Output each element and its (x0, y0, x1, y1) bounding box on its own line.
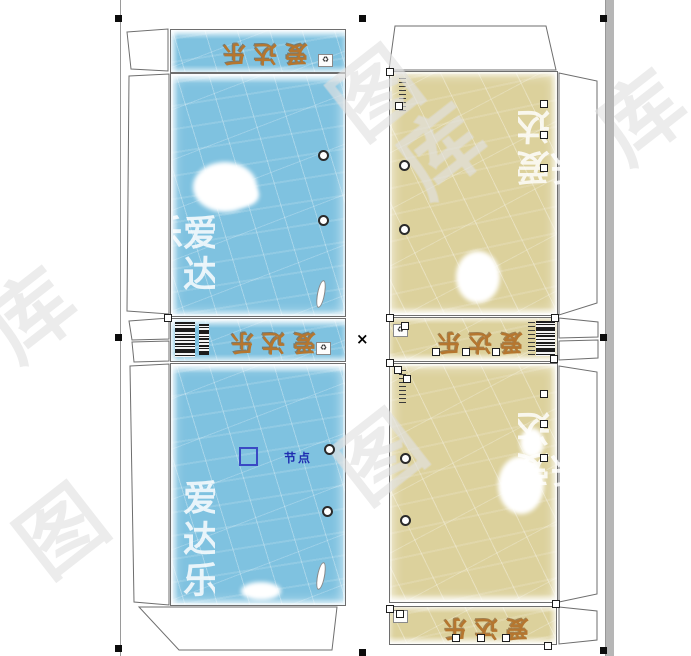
node-circle[interactable] (318, 215, 329, 226)
grunge-splat (231, 184, 259, 206)
node-square[interactable] (462, 348, 470, 356)
barcode[interactable] (175, 322, 195, 357)
node-square[interactable] (395, 102, 403, 110)
tan-bottom-panel[interactable]: 爱达乐 (389, 363, 558, 603)
node-square[interactable] (544, 642, 552, 650)
node-square[interactable] (432, 348, 440, 356)
selection-handle-top-right[interactable] (600, 15, 607, 22)
squiggle-mark (315, 562, 327, 591)
node-square[interactable] (540, 420, 548, 428)
node-circle[interactable] (324, 444, 335, 455)
node-square[interactable] (386, 314, 394, 322)
grunge-splat (456, 251, 500, 303)
die-flap-bottom-left-box[interactable] (139, 607, 337, 650)
squiggle-mark (315, 280, 327, 309)
node-square[interactable] (540, 100, 548, 108)
recycle-icon: ♻ (316, 342, 331, 355)
node-square[interactable] (386, 605, 394, 613)
selection-handle-mid-right[interactable] (600, 334, 607, 341)
selection-handle-bottom-left[interactable] (115, 645, 122, 652)
blue-top-panel[interactable]: 爱达乐 (170, 73, 346, 317)
blue-mid-strip[interactable]: 爱达乐 ♻ (170, 318, 346, 362)
vertical-scrollbar[interactable] (605, 0, 614, 656)
node-square[interactable] (540, 164, 548, 172)
barcode[interactable] (199, 324, 209, 355)
selection-handle-mid-left[interactable] (115, 334, 122, 341)
node-square[interactable] (164, 314, 172, 322)
selection-handle-bottom-center[interactable] (359, 649, 366, 656)
die-flap-side-lower-right[interactable] (559, 366, 597, 602)
node-circle[interactable] (322, 506, 333, 517)
node-square[interactable] (394, 366, 402, 374)
node-square[interactable] (551, 314, 559, 322)
node-circle[interactable] (400, 515, 411, 526)
node-tooltip-label: 节点 (284, 449, 312, 466)
die-flap-strip-right-a[interactable] (559, 318, 598, 338)
blue-bottom-panel[interactable]: 爱达乐 (170, 363, 346, 606)
die-flap-bottom-right-small[interactable] (559, 607, 597, 644)
selected-node-indicator[interactable] (239, 447, 258, 466)
brand-text-blue-strip: 爱达乐 (223, 328, 316, 362)
selection-center-mark: × (356, 330, 369, 348)
die-flap-top-right-box[interactable] (389, 26, 556, 70)
node-square[interactable] (552, 600, 560, 608)
brand-text-tan-bottom-flap: 爱达乐 (436, 614, 529, 648)
node-square[interactable] (550, 355, 558, 363)
die-flap-side-upper-right[interactable] (559, 73, 597, 315)
selection-handle-top-center[interactable] (359, 15, 366, 22)
barcode[interactable] (536, 321, 555, 356)
node-square[interactable] (540, 454, 548, 462)
node-square[interactable] (452, 634, 460, 642)
node-circle[interactable] (399, 224, 410, 235)
die-flap-side-lower-left[interactable] (130, 364, 169, 605)
node-circle[interactable] (399, 160, 410, 171)
grunge-splat (241, 582, 281, 600)
ghost-brand-text-vertical: 爱达乐 (518, 370, 560, 488)
die-flap-strip-right-b[interactable] (559, 340, 598, 360)
brand-text-tan-strip: 爱达乐 (430, 328, 523, 362)
brand-text-blue-top-flap: 爱达乐 (215, 39, 308, 73)
ghost-brand-text-vertical: 爱达乐 (518, 76, 560, 186)
node-circle[interactable] (318, 150, 329, 161)
editor-canvas[interactable]: 爱达乐 ♻ 爱达乐 爱达乐 ♻ 爱达乐 爱达乐 ♻ (0, 0, 691, 656)
die-flap-top-left[interactable] (127, 29, 168, 71)
die-flap-side-upper-left[interactable] (127, 74, 169, 314)
node-square[interactable] (386, 68, 394, 76)
node-square[interactable] (502, 634, 510, 642)
recycle-icon: ♻ (318, 54, 333, 67)
node-square[interactable] (396, 610, 404, 618)
die-flap-strip-left-a[interactable] (129, 318, 169, 340)
node-square[interactable] (540, 390, 548, 398)
node-circle[interactable] (400, 453, 411, 464)
node-square[interactable] (540, 131, 548, 139)
node-square[interactable] (477, 634, 485, 642)
node-square[interactable] (401, 322, 409, 330)
node-square[interactable] (492, 348, 500, 356)
ghost-brand-text-vertical: 爱达乐 (173, 214, 215, 316)
node-square[interactable] (403, 375, 411, 383)
blue-top-flap[interactable]: 爱达乐 ♻ (170, 29, 346, 73)
ghost-brand-text-vertical: 爱达乐 (173, 479, 215, 604)
die-flap-strip-left-b[interactable] (132, 341, 169, 362)
tan-bottom-flap[interactable]: ♻ 爱达乐 (389, 606, 557, 645)
node-square[interactable] (386, 359, 394, 367)
small-print-marks (528, 322, 535, 355)
tan-top-panel[interactable]: 爱达乐 (389, 71, 558, 316)
tan-mid-strip[interactable]: ♻ 爱达乐 (389, 317, 558, 362)
selection-handle-bottom-right[interactable] (600, 647, 607, 654)
selection-handle-top-left[interactable] (115, 15, 122, 22)
